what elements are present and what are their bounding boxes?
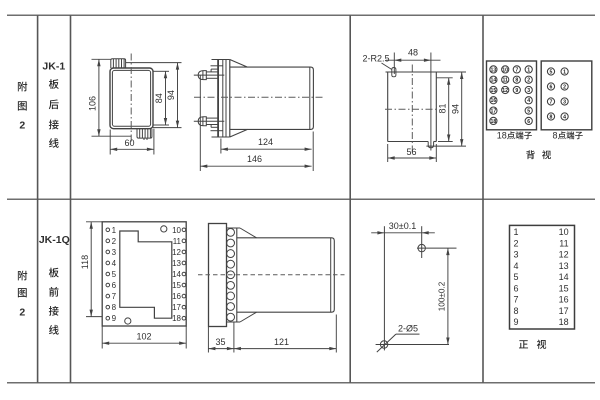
svg-text:13: 13	[491, 67, 497, 73]
svg-text:6: 6	[550, 84, 553, 90]
svg-text:4: 4	[563, 114, 566, 120]
svg-text:16: 16	[491, 98, 497, 104]
svg-text:4: 4	[514, 261, 519, 271]
svg-text:6: 6	[112, 281, 117, 290]
svg-text:11: 11	[559, 238, 568, 248]
svg-text:10: 10	[502, 67, 508, 73]
svg-text:3: 3	[514, 250, 519, 260]
svg-text:4: 4	[112, 259, 117, 268]
svg-text:15: 15	[172, 281, 181, 290]
svg-text:106: 106	[88, 96, 98, 111]
svg-text:2: 2	[527, 78, 530, 84]
svg-text:7: 7	[514, 295, 519, 305]
svg-text:100±0.2: 100±0.2	[438, 281, 447, 311]
svg-text:8: 8	[112, 303, 117, 312]
svg-text:9: 9	[112, 314, 117, 323]
svg-text:60: 60	[124, 138, 134, 148]
svg-text:30±0.1: 30±0.1	[389, 221, 416, 231]
svg-text:1: 1	[112, 226, 117, 235]
svg-text:JK-1Q: JK-1Q	[39, 234, 70, 246]
svg-text:10: 10	[172, 226, 181, 235]
svg-text:3: 3	[527, 88, 530, 94]
svg-text:9: 9	[515, 88, 518, 94]
svg-text:121: 121	[274, 337, 289, 347]
svg-text:4: 4	[527, 98, 530, 104]
svg-text:14: 14	[559, 272, 569, 282]
svg-text:12: 12	[502, 88, 508, 94]
svg-text:17: 17	[559, 306, 569, 316]
svg-text:12: 12	[559, 250, 569, 260]
svg-text:16: 16	[172, 292, 181, 301]
svg-text:18: 18	[491, 119, 497, 125]
svg-text:81: 81	[437, 103, 447, 113]
svg-text:2: 2	[563, 84, 566, 90]
svg-text:18: 18	[172, 314, 181, 323]
svg-text:56: 56	[406, 147, 416, 157]
svg-text:1: 1	[514, 227, 519, 237]
svg-text:18: 18	[559, 317, 569, 327]
svg-text:13: 13	[559, 261, 569, 271]
svg-text:9: 9	[514, 317, 519, 327]
svg-text:2: 2	[19, 307, 25, 319]
svg-text:16: 16	[559, 295, 569, 305]
svg-text:94: 94	[450, 104, 460, 114]
svg-text:8: 8	[514, 306, 519, 316]
svg-text:6: 6	[527, 119, 530, 125]
svg-text:11: 11	[502, 78, 508, 84]
svg-text:JK-1: JK-1	[42, 61, 65, 73]
svg-text:6: 6	[514, 283, 519, 293]
svg-text:3: 3	[112, 248, 117, 257]
svg-text:2: 2	[112, 237, 117, 246]
svg-text:7: 7	[515, 67, 518, 73]
svg-text:7: 7	[112, 292, 117, 301]
svg-text:5: 5	[112, 270, 117, 279]
svg-text:14: 14	[172, 270, 181, 279]
svg-text:3: 3	[563, 99, 566, 105]
svg-text:10: 10	[559, 227, 569, 237]
svg-text:1: 1	[563, 69, 566, 75]
svg-text:94: 94	[166, 90, 176, 100]
svg-text:102: 102	[136, 332, 151, 342]
svg-text:48: 48	[408, 48, 418, 58]
svg-text:17: 17	[172, 303, 181, 312]
svg-text:15: 15	[491, 88, 497, 94]
svg-text:2-Ø5: 2-Ø5	[398, 324, 418, 334]
svg-text:2: 2	[19, 119, 25, 131]
svg-text:1: 1	[527, 67, 530, 73]
svg-text:2: 2	[514, 238, 519, 248]
svg-text:18: 18	[497, 131, 507, 141]
svg-text:15: 15	[559, 283, 569, 293]
svg-text:13: 13	[172, 259, 181, 268]
svg-text:8: 8	[550, 114, 553, 120]
svg-text:12: 12	[172, 248, 181, 257]
svg-text:17: 17	[491, 109, 497, 115]
svg-text:5: 5	[550, 69, 553, 75]
svg-text:2-R2.5: 2-R2.5	[363, 54, 390, 64]
svg-text:118: 118	[80, 255, 90, 269]
svg-text:5: 5	[514, 272, 519, 282]
svg-text:5: 5	[527, 109, 530, 115]
svg-text:11: 11	[173, 237, 182, 246]
svg-text:84: 84	[154, 93, 164, 103]
svg-text:146: 146	[247, 154, 262, 164]
svg-text:8: 8	[553, 131, 558, 141]
svg-text:35: 35	[215, 337, 225, 347]
svg-text:124: 124	[258, 137, 273, 147]
svg-text:8: 8	[515, 78, 518, 84]
svg-text:14: 14	[491, 78, 497, 84]
svg-text:7: 7	[550, 99, 553, 105]
